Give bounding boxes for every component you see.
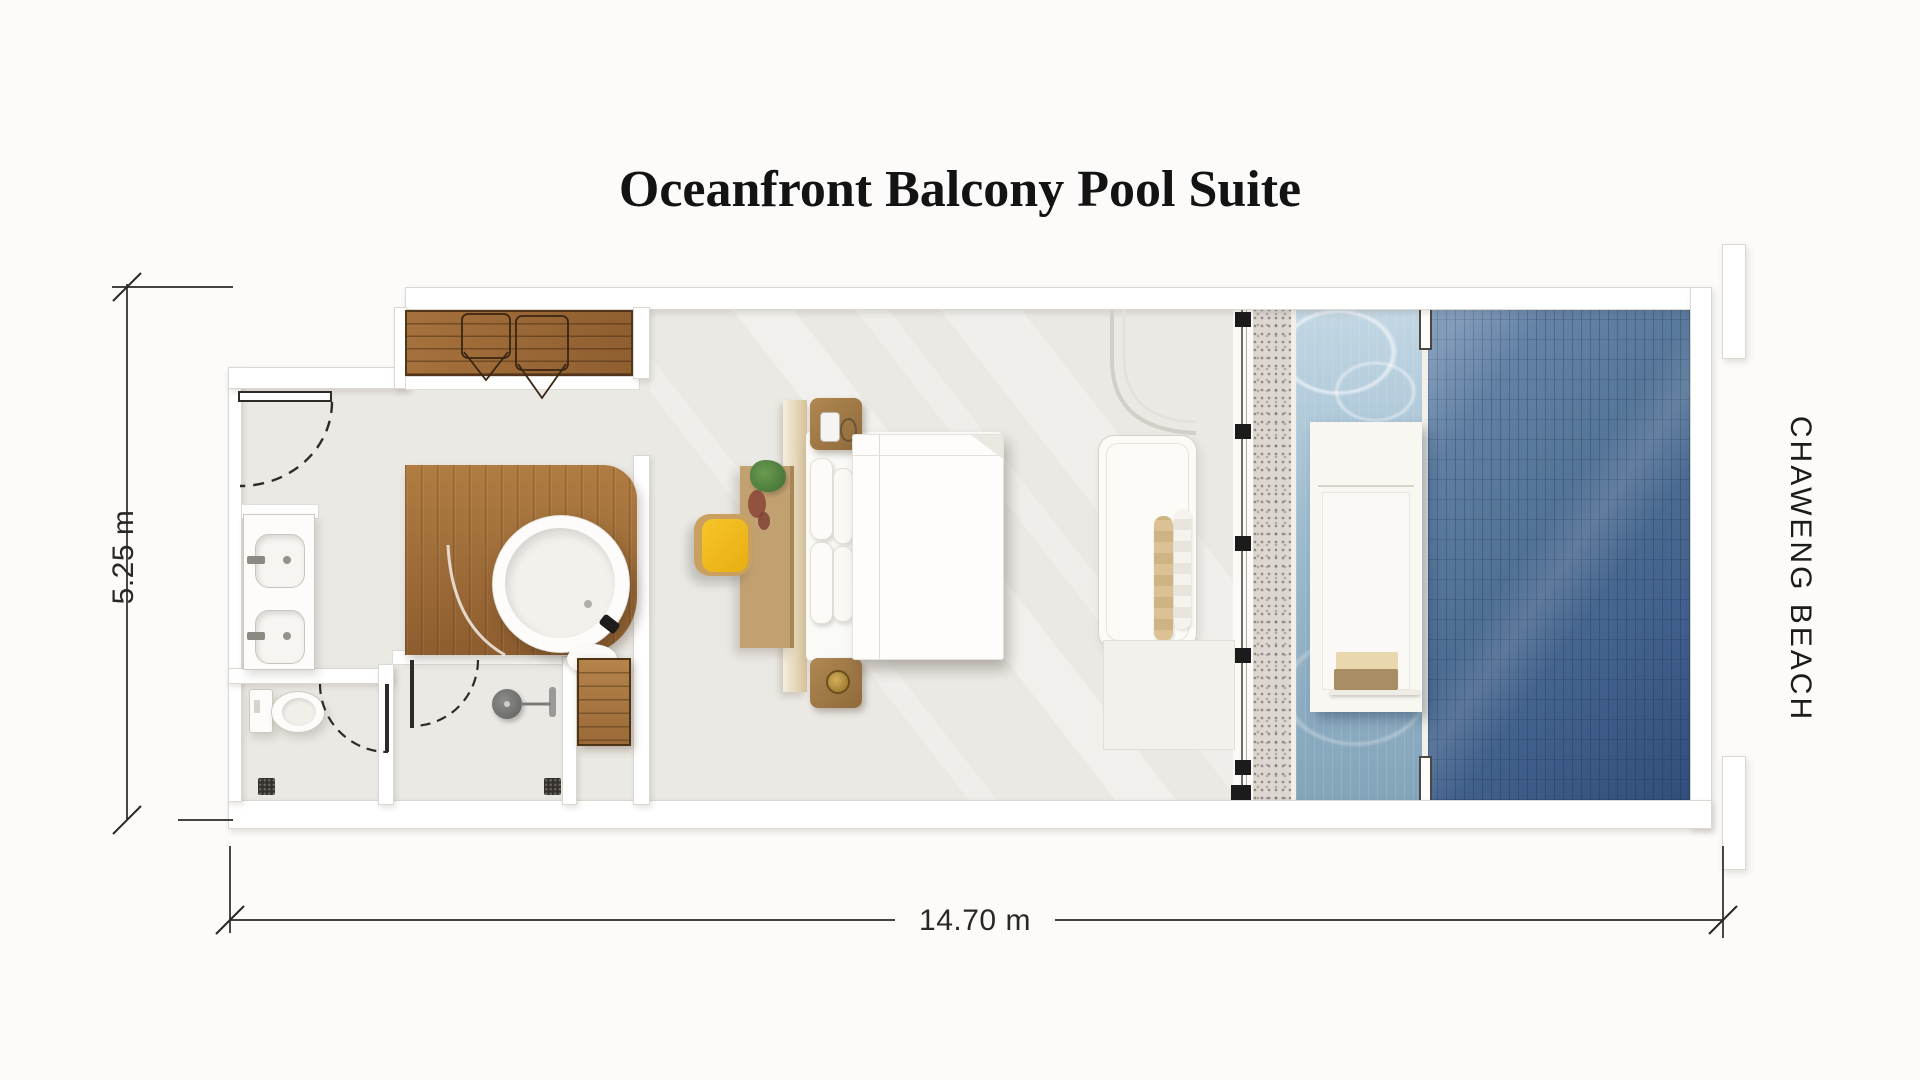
wall-entry	[228, 367, 410, 389]
desk-chair	[702, 519, 748, 572]
wall-right	[1690, 287, 1712, 829]
door-panel-handle	[1235, 648, 1251, 663]
towel-roll	[1154, 516, 1173, 641]
daybed-ledge	[1330, 690, 1420, 695]
floorplan-page: Oceanfront Balcony Pool Suite	[0, 0, 1920, 1080]
dim-tick	[113, 806, 141, 834]
door-panel-handle	[1235, 760, 1251, 775]
door-panel-handle	[1235, 424, 1251, 439]
door-panel-handle	[1231, 785, 1251, 800]
balcony-daybed	[1098, 435, 1197, 649]
shower-head-center	[504, 701, 510, 707]
wall-left	[228, 367, 242, 802]
duvet-fold-line	[879, 435, 880, 659]
door-panel-handle	[1235, 312, 1251, 327]
towel-roll	[1174, 509, 1191, 629]
tray-icon	[826, 670, 850, 694]
pool-divider-stub	[1419, 756, 1432, 802]
sliding-door	[1233, 308, 1253, 800]
pillow	[833, 546, 853, 622]
shower-bar	[549, 687, 556, 717]
bathtub-drain	[584, 600, 592, 608]
shower-drain	[544, 778, 561, 795]
pillow	[833, 468, 853, 544]
faucet-icon	[247, 556, 265, 564]
dimension-width-label: 14.70 m	[895, 902, 1055, 940]
sink-drain	[283, 556, 291, 564]
toilet-seat	[282, 698, 316, 726]
pool-divider-stub	[1419, 306, 1432, 350]
wall-wc-divider	[228, 668, 394, 684]
pool-daybed	[1310, 422, 1422, 712]
wall-bottom	[228, 800, 1712, 829]
floor-drain	[258, 778, 275, 795]
beach-label: CHAWENG BEACH	[1783, 409, 1817, 729]
entry-door-leaf	[238, 391, 332, 402]
dim-tick	[113, 273, 141, 301]
plant-vine-icon	[758, 512, 770, 530]
door-track-line	[1246, 308, 1247, 800]
wall-shower-right	[562, 656, 577, 805]
shower-bench	[577, 658, 631, 746]
towel	[1334, 669, 1398, 690]
shower-door-leaf	[410, 660, 414, 728]
plant-icon	[750, 460, 786, 492]
pier-top-right	[1722, 244, 1746, 359]
pebble-border	[1253, 308, 1291, 800]
wall-below-closet	[405, 376, 640, 390]
sink-drain	[283, 632, 291, 640]
faucet-icon	[247, 632, 265, 640]
telephone-icon	[820, 412, 840, 442]
wall-bedroom-stub	[633, 307, 650, 379]
door-panel-handle	[1235, 536, 1251, 551]
wardrobe	[405, 310, 633, 376]
toilet-flush-button	[254, 700, 260, 713]
pool-divider	[1422, 308, 1428, 800]
daybed-headrest-line	[1318, 485, 1414, 487]
pier-bottom-right	[1722, 756, 1746, 870]
balcony-platform	[1103, 640, 1235, 750]
pillow	[810, 542, 833, 624]
door-track-line	[1241, 308, 1243, 800]
sheet-line	[853, 455, 1003, 456]
entry-notch	[233, 279, 407, 368]
pillow	[810, 458, 833, 540]
toilet-door-leaf	[385, 684, 389, 752]
dim-tick	[1709, 906, 1737, 934]
toilet-tank	[249, 689, 273, 733]
wall-top	[405, 287, 1692, 310]
dimension-height-label: 5.25 m	[107, 497, 141, 617]
page-title: Oceanfront Balcony Pool Suite	[0, 160, 1920, 219]
dim-tick	[216, 906, 244, 934]
duvet	[852, 434, 1004, 660]
main-pool	[1428, 308, 1690, 800]
